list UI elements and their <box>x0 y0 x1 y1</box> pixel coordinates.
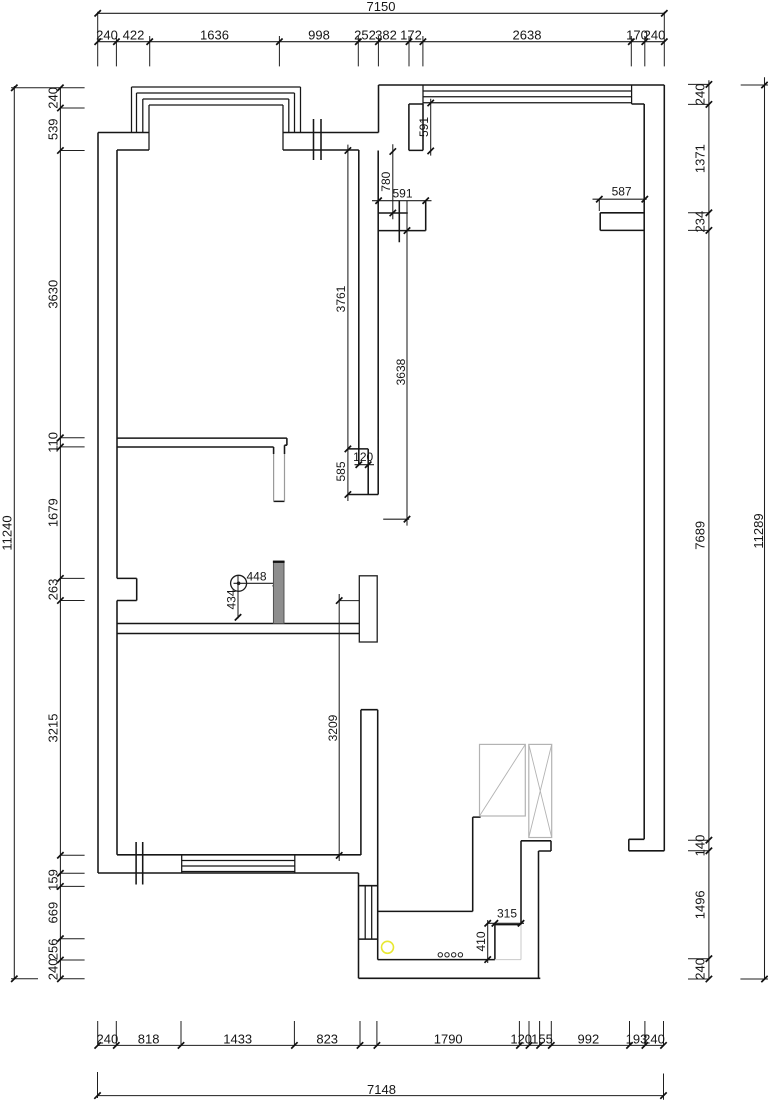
svg-text:315: 315 <box>497 907 517 921</box>
svg-text:1496: 1496 <box>693 890 708 919</box>
svg-text:591: 591 <box>392 187 412 201</box>
svg-text:818: 818 <box>138 1032 160 1047</box>
svg-text:448: 448 <box>246 569 266 583</box>
svg-text:240: 240 <box>46 87 61 109</box>
svg-text:155: 155 <box>531 1032 553 1047</box>
svg-text:7689: 7689 <box>693 521 708 550</box>
svg-text:1679: 1679 <box>46 498 61 527</box>
svg-text:2638: 2638 <box>513 27 542 42</box>
svg-text:1636: 1636 <box>200 27 229 42</box>
svg-text:7148: 7148 <box>367 1082 396 1097</box>
svg-text:3638: 3638 <box>394 358 408 385</box>
svg-text:422: 422 <box>123 27 145 42</box>
svg-text:434: 434 <box>225 589 239 609</box>
svg-text:120: 120 <box>353 450 373 464</box>
svg-text:780: 780 <box>379 171 393 191</box>
svg-text:587: 587 <box>612 184 632 198</box>
svg-text:11289: 11289 <box>751 513 766 548</box>
svg-text:1790: 1790 <box>434 1032 463 1047</box>
svg-text:234: 234 <box>693 211 708 233</box>
svg-text:539: 539 <box>46 118 61 140</box>
svg-text:252: 252 <box>354 27 376 42</box>
svg-text:1371: 1371 <box>693 144 708 173</box>
svg-text:998: 998 <box>308 27 330 42</box>
svg-text:159: 159 <box>46 869 61 891</box>
svg-text:110: 110 <box>46 432 61 453</box>
svg-text:263: 263 <box>46 579 61 601</box>
svg-text:823: 823 <box>316 1032 338 1047</box>
svg-text:410: 410 <box>474 931 488 951</box>
svg-text:7150: 7150 <box>367 0 396 14</box>
svg-text:3209: 3209 <box>326 714 340 741</box>
svg-text:585: 585 <box>334 461 348 481</box>
svg-text:3630: 3630 <box>46 280 61 309</box>
svg-text:992: 992 <box>578 1032 600 1047</box>
svg-text:240: 240 <box>96 27 118 42</box>
svg-text:240: 240 <box>693 84 708 106</box>
svg-text:240: 240 <box>46 959 61 981</box>
svg-text:240: 240 <box>643 1032 665 1047</box>
svg-text:172: 172 <box>400 27 422 42</box>
svg-text:669: 669 <box>46 902 61 924</box>
svg-text:240: 240 <box>97 1032 119 1047</box>
svg-text:256: 256 <box>46 939 61 961</box>
svg-text:591: 591 <box>417 117 431 137</box>
svg-text:120: 120 <box>510 1032 532 1047</box>
svg-text:382: 382 <box>375 27 397 42</box>
svg-text:1433: 1433 <box>223 1032 252 1047</box>
svg-text:3761: 3761 <box>334 285 348 312</box>
svg-text:140: 140 <box>693 835 708 857</box>
svg-text:3215: 3215 <box>46 714 61 743</box>
svg-text:240: 240 <box>693 958 708 980</box>
svg-text:11240: 11240 <box>0 515 15 550</box>
svg-text:240: 240 <box>644 27 666 42</box>
